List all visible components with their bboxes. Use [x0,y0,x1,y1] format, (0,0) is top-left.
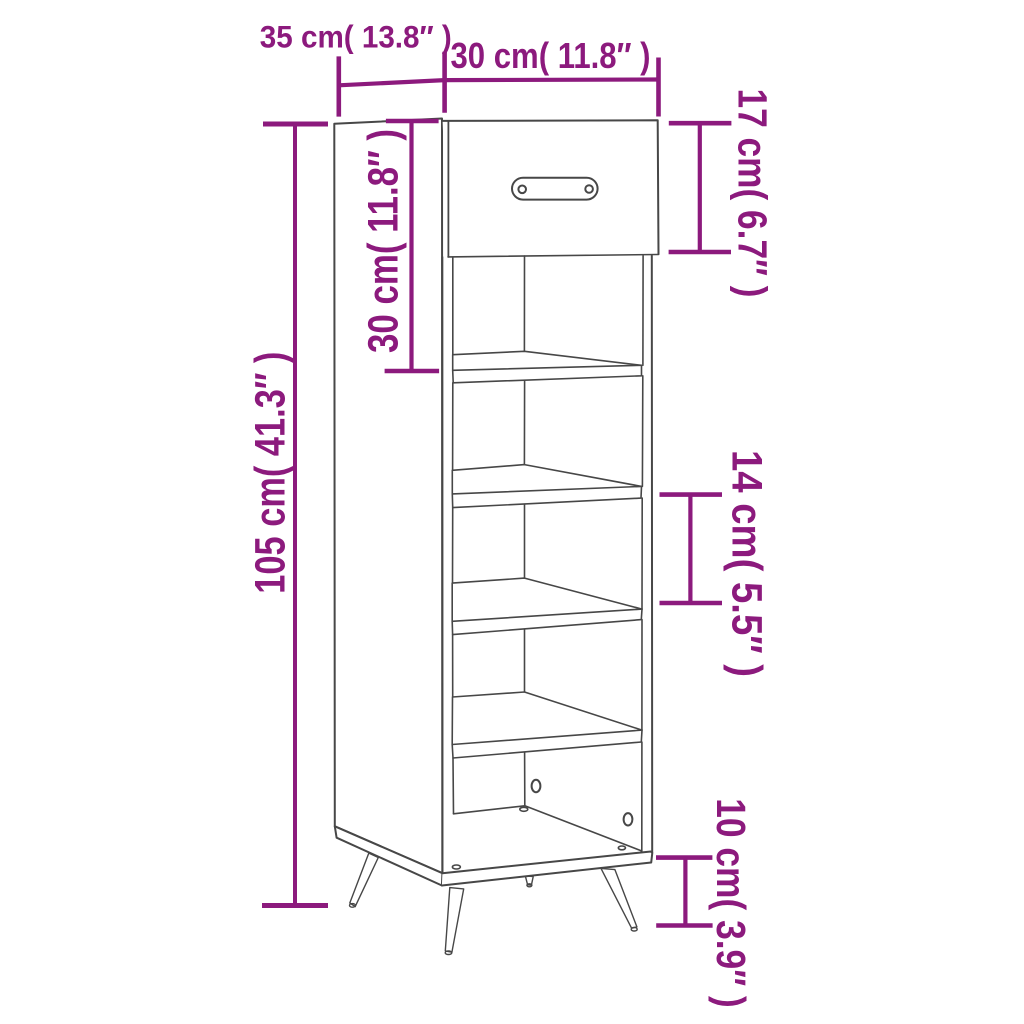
svg-text:30 cm( 11.8″ ): 30 cm( 11.8″ ) [451,35,651,76]
svg-text:35 cm( 13.8″ ): 35 cm( 13.8″ ) [260,18,452,54]
svg-text:17 cm( 6.7″ ): 17 cm( 6.7″ ) [730,89,776,298]
svg-text:105 cm( 41.3″ ): 105 cm( 41.3″ ) [246,352,294,594]
svg-text:30 cm( 11.8″ ): 30 cm( 11.8″ ) [360,129,408,353]
svg-text:14 cm( 5.5″ ): 14 cm( 5.5″ ) [723,450,771,677]
svg-text:10 cm( 3.9″ ): 10 cm( 3.9″ ) [708,798,754,1008]
